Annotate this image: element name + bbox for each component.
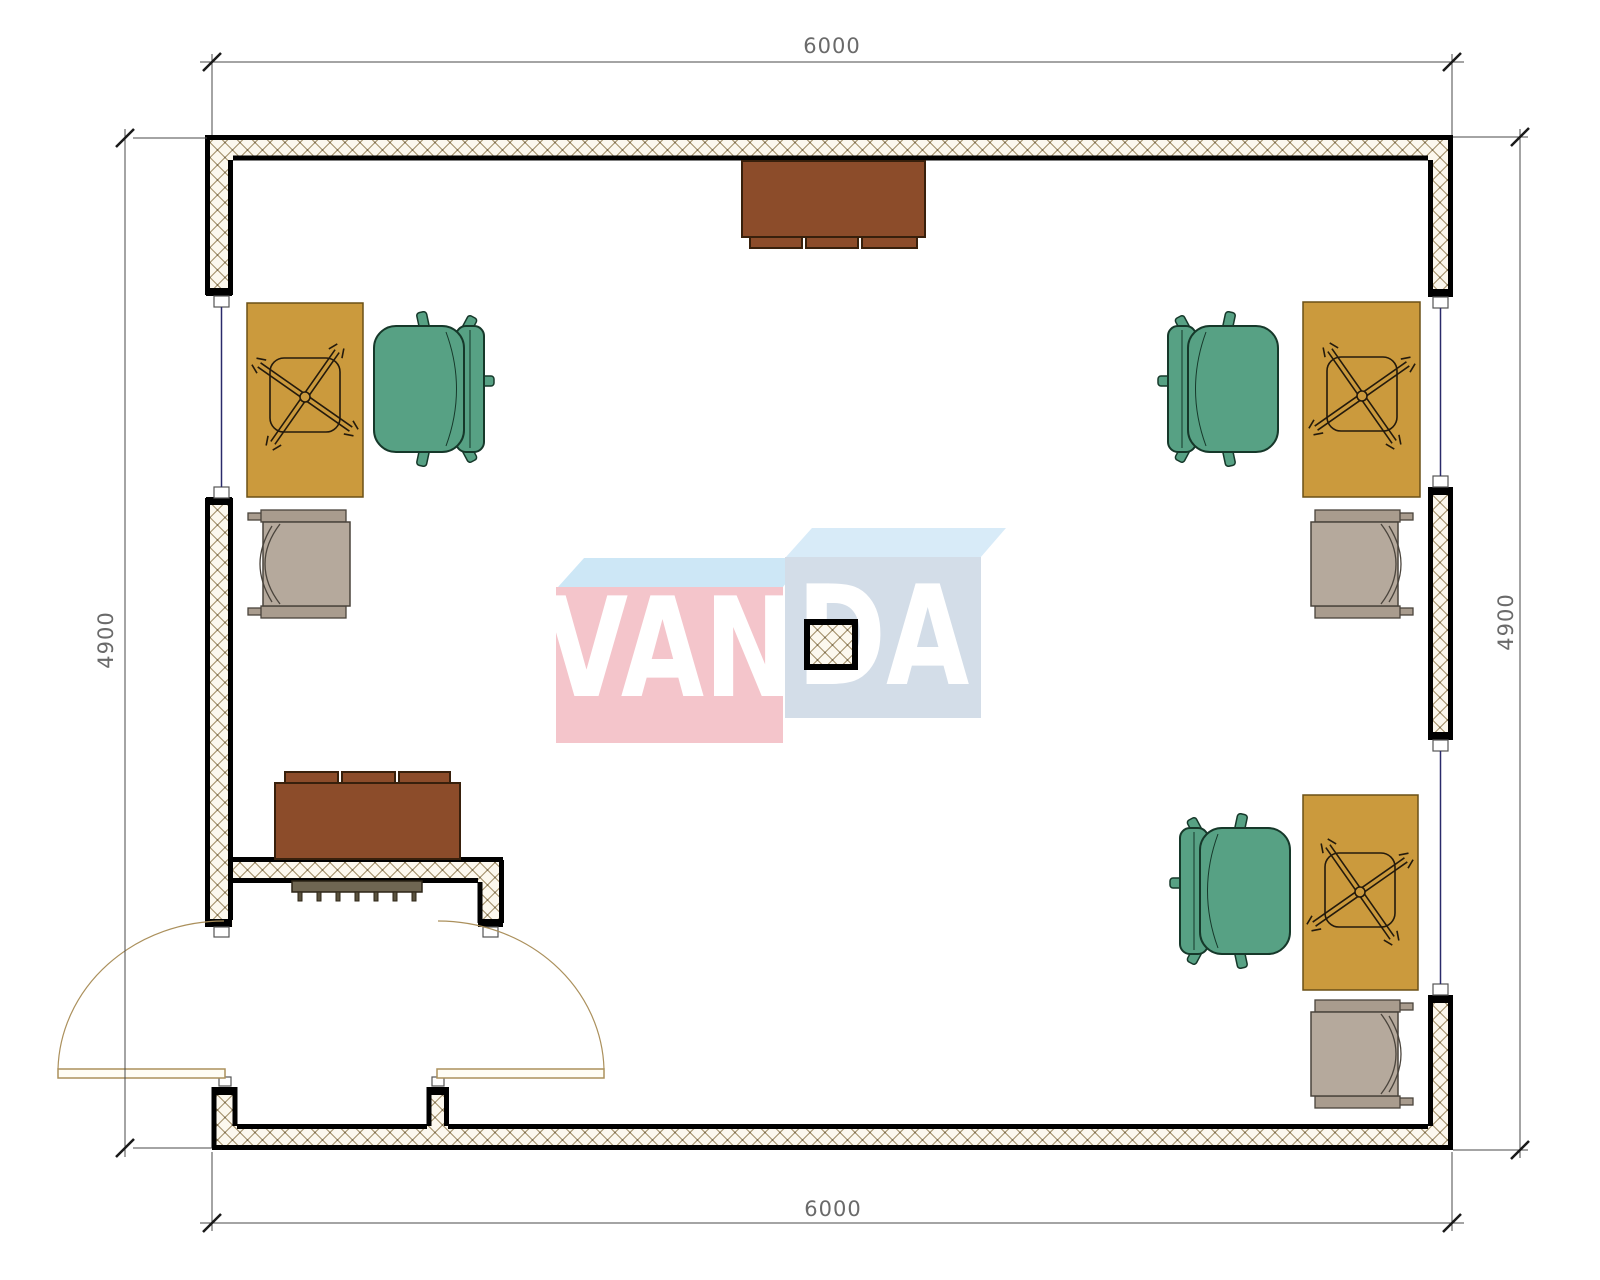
dimension-label-left: 4900 <box>93 580 119 700</box>
window-right-lower <box>1433 740 1448 995</box>
desk-top-right <box>1303 302 1420 497</box>
door-swing-arc-left <box>58 921 224 1069</box>
desk-top-left <box>247 303 363 497</box>
door-leaf-left <box>58 1069 225 1078</box>
dimension-label-bottom: 6000 <box>773 1196 893 1222</box>
floor-plan: VAN DA <box>0 0 1600 1280</box>
office-chair-bottom-right <box>1170 813 1290 969</box>
dimension-label-right: 4900 <box>1493 562 1519 682</box>
office-chair-top-left <box>374 311 494 467</box>
desk-bottom-right <box>1303 795 1418 990</box>
armchair-top-right <box>1311 510 1413 618</box>
armchair-bottom-right <box>1311 1000 1413 1108</box>
window-right-upper <box>1433 297 1448 487</box>
wardrobe-cabinet-top <box>742 161 925 248</box>
cabinet-entrance <box>275 772 460 859</box>
window-left <box>214 296 229 498</box>
door-swing-arc-right <box>438 921 604 1069</box>
office-chair-top-right <box>1158 311 1278 467</box>
entrance-double-door <box>58 921 604 1086</box>
structural-column <box>807 622 855 667</box>
coat-rack <box>292 881 422 901</box>
armchair-top-left <box>248 510 350 618</box>
plan-drawing <box>0 0 1600 1280</box>
door-leaf-right <box>437 1069 604 1078</box>
dimension-label-top: 6000 <box>772 33 892 59</box>
